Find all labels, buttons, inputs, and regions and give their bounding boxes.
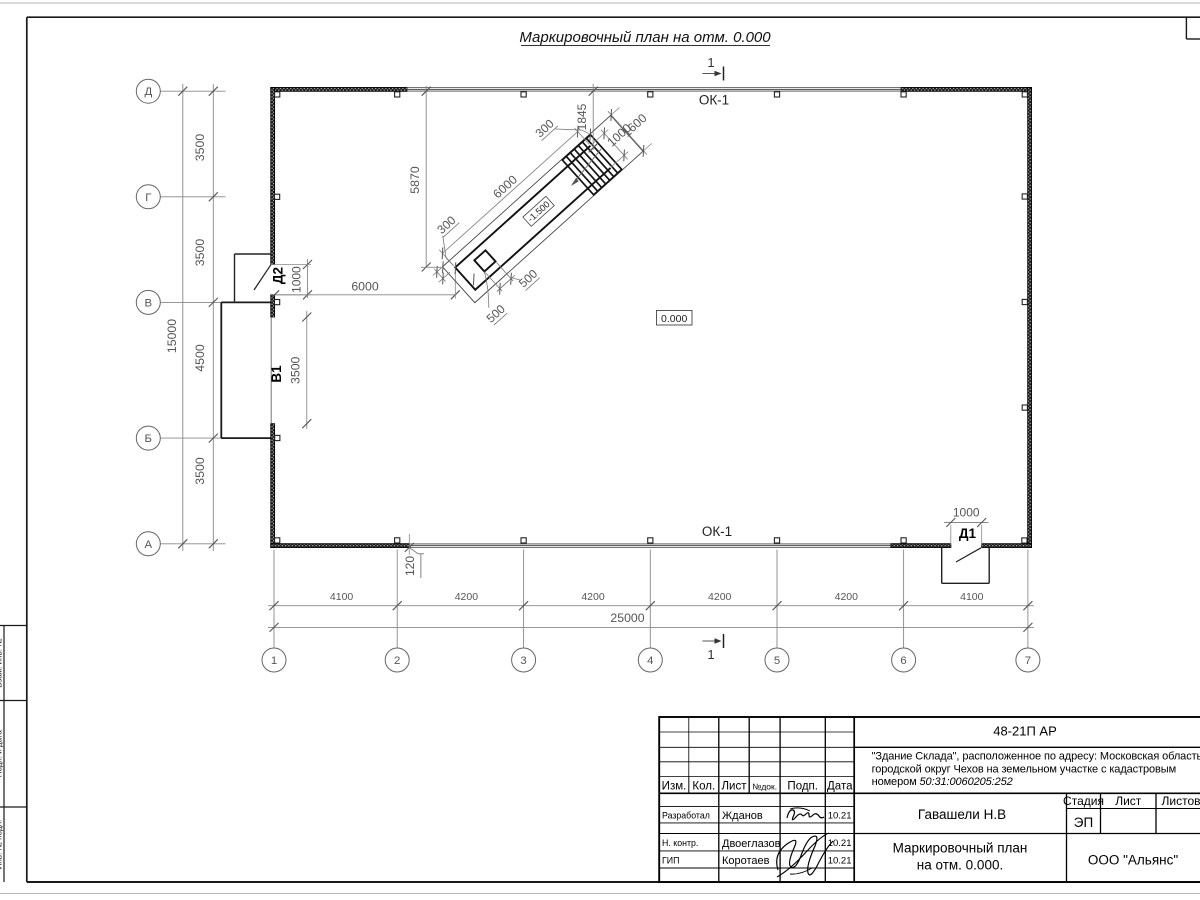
svg-text:5870: 5870	[408, 166, 422, 194]
svg-text:Кол.: Кол.	[692, 780, 715, 792]
svg-text:3500: 3500	[193, 457, 207, 485]
svg-text:Н. контр.: Н. контр.	[662, 838, 698, 848]
svg-text:ОК-1: ОК-1	[702, 524, 732, 539]
svg-text:Стадия: Стадия	[1063, 794, 1104, 808]
svg-text:1845: 1845	[575, 103, 589, 130]
svg-text:Подп. и дата: Подп. и дата	[0, 730, 4, 778]
svg-text:ГИП: ГИП	[662, 856, 679, 866]
svg-text:4100: 4100	[330, 591, 354, 603]
svg-text:2: 2	[394, 655, 400, 667]
svg-text:В1: В1	[269, 365, 284, 383]
svg-text:Г: Г	[145, 192, 151, 204]
svg-text:3500: 3500	[289, 356, 303, 384]
svg-text:Лист: Лист	[722, 780, 748, 792]
svg-text:Гавашели Н.В: Гавашели Н.В	[918, 807, 1006, 822]
svg-text:Коротаев: Коротаев	[722, 855, 770, 867]
svg-text:№док.: №док.	[752, 782, 777, 792]
svg-text:Лист: Лист	[1115, 794, 1142, 808]
svg-text:15000: 15000	[165, 319, 179, 353]
svg-text:Разработал: Разработал	[662, 811, 710, 821]
svg-text:6: 6	[900, 655, 906, 667]
svg-text:1000: 1000	[953, 506, 980, 520]
svg-text:номером 50:31:0060205:252: номером 50:31:0060205:252	[872, 776, 1013, 788]
svg-text:Жданов: Жданов	[722, 810, 763, 822]
svg-text:Взам. инв. №: Взам. инв. №	[0, 638, 4, 688]
svg-text:Двоеглазов: Двоеглазов	[722, 838, 781, 850]
svg-text:10.21: 10.21	[828, 856, 852, 867]
svg-text:Инв. № подл.: Инв. № подл.	[0, 820, 4, 870]
svg-text:1: 1	[707, 55, 714, 70]
svg-text:1: 1	[707, 647, 714, 662]
svg-text:3500: 3500	[193, 239, 207, 267]
svg-text:Маркировочный план: Маркировочный план	[893, 841, 1028, 856]
svg-text:Д1: Д1	[959, 526, 977, 541]
svg-text:Изм.: Изм.	[662, 780, 687, 792]
svg-text:4200: 4200	[581, 591, 605, 603]
svg-text:1: 1	[271, 655, 277, 667]
svg-text:4500: 4500	[193, 344, 207, 372]
svg-text:48-21П АР: 48-21П АР	[993, 724, 1057, 739]
svg-text:10.21: 10.21	[828, 811, 852, 822]
svg-text:Листов: Листов	[1162, 794, 1200, 808]
svg-text:В: В	[144, 297, 152, 309]
svg-text:4100: 4100	[960, 591, 984, 603]
svg-text:25000: 25000	[610, 611, 644, 625]
svg-text:"Здание Склада", расположенное: "Здание Склада", расположенное по адресу…	[872, 751, 1200, 763]
svg-text:ЭП: ЭП	[1074, 815, 1093, 830]
svg-text:3500: 3500	[193, 134, 207, 162]
svg-text:6000: 6000	[351, 279, 379, 293]
svg-text:Маркировочный план на отм. 0.0: Маркировочный план на отм. 0.000	[519, 29, 771, 46]
svg-text:1000: 1000	[290, 266, 304, 293]
svg-text:на отм. 0.000.: на отм. 0.000.	[917, 858, 1003, 873]
svg-text:Д2: Д2	[271, 267, 286, 284]
svg-text:Д: Д	[144, 86, 152, 98]
svg-text:7: 7	[1025, 655, 1031, 667]
svg-text:4: 4	[647, 655, 653, 667]
svg-text:Подп.: Подп.	[787, 780, 818, 792]
svg-text:120: 120	[403, 556, 417, 576]
svg-text:4200: 4200	[708, 591, 732, 603]
svg-text:4200: 4200	[455, 591, 479, 603]
svg-text:Б: Б	[145, 433, 152, 445]
svg-text:5: 5	[774, 655, 780, 667]
svg-text:городской округ Чехов на земел: городской округ Чехов на земельном участ…	[872, 763, 1176, 775]
svg-text:ООО "Альянс": ООО "Альянс"	[1088, 853, 1178, 868]
svg-text:4200: 4200	[835, 591, 859, 603]
svg-text:Дата: Дата	[827, 780, 853, 792]
svg-text:0.000: 0.000	[661, 313, 687, 325]
svg-text:А: А	[144, 539, 152, 551]
svg-text:ОК-1: ОК-1	[699, 93, 729, 108]
svg-text:3: 3	[520, 655, 526, 667]
